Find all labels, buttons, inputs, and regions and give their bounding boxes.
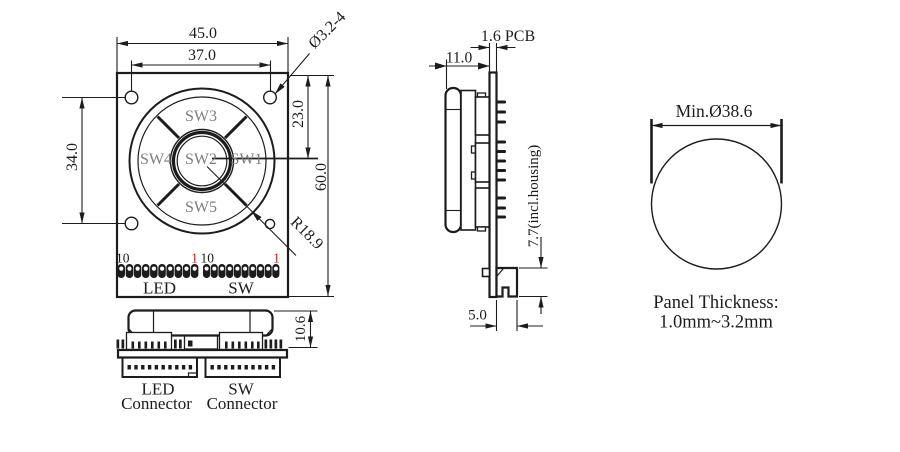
keycap-body-profile — [461, 91, 476, 231]
panel-thickness-note-line1: Panel Thickness: — [653, 293, 779, 313]
svg-text:23.0: 23.0 — [290, 100, 307, 128]
dim-keycap-depth: 11.0 — [429, 50, 490, 90]
led-pin10-number: 10 — [116, 251, 130, 266]
switch-label-sw1: SW1 — [231, 151, 263, 168]
technical-drawing: SW3 SW4 SW2 SW1 SW5 45.0 37.0 Ø3.2-4 — [0, 0, 900, 452]
dim-connector-protrusion: 5.0 — [468, 300, 543, 331]
mounting-hole-top-left — [125, 91, 138, 104]
dim-center-from-top: 23.0 — [290, 76, 334, 159]
svg-text:7.7(incl.housing): 7.7(incl.housing) — [526, 145, 542, 248]
pcb-side-profile — [490, 73, 497, 298]
switch-label-sw4: SW4 — [140, 151, 172, 168]
panel-thickness-note-line2: 1.0mm~3.2mm — [659, 313, 773, 333]
svg-text:11.0: 11.0 — [446, 50, 473, 67]
dim-hole-spacing-width: 37.0 — [132, 47, 271, 91]
keycap-profile — [129, 311, 273, 336]
pcb-edge-strip — [118, 350, 287, 358]
sw-connector-label-line2: Connector — [207, 394, 278, 413]
dim-pcb-thickness: 1.6 PCB — [471, 28, 536, 48]
cutout-circle — [652, 139, 782, 269]
svg-text:1.6 PCB: 1.6 PCB — [481, 28, 535, 45]
bottom-elevation-view: 10.6 LED Connector SW Connector — [117, 311, 318, 414]
dim-min-diameter: Min.Ø38.6 — [676, 101, 753, 121]
sw-pin-row — [203, 264, 279, 278]
svg-text:60.0: 60.0 — [313, 163, 330, 191]
led-pin1-number: 1 — [191, 251, 198, 266]
locating-peg — [483, 269, 490, 277]
svg-text:34.0: 34.0 — [64, 143, 81, 171]
svg-text:37.0: 37.0 — [188, 47, 216, 64]
led-row-label: LED — [143, 279, 176, 298]
led-pin-row — [118, 264, 199, 278]
dim-keycap-radius: R18.9 — [287, 214, 326, 253]
svg-text:Ø3.2-4: Ø3.2-4 — [305, 8, 349, 52]
dim-rear-protrusion: 7.7(incl.housing) — [519, 145, 548, 314]
mounting-hole-top-right — [264, 91, 277, 104]
sw-pin10-number: 10 — [201, 251, 215, 266]
sw-row-label: SW — [228, 279, 254, 298]
svg-text:5.0: 5.0 — [468, 308, 487, 324]
panel-cutout-view: Min.Ø38.6 Panel Thickness: 1.0mm~3.2mm — [652, 101, 782, 333]
sw-pin1-number: 1 — [273, 251, 280, 266]
svg-text:45.0: 45.0 — [189, 25, 217, 42]
sw-connector — [206, 358, 281, 378]
switch-label-sw5: SW5 — [185, 199, 217, 216]
led-connector — [123, 358, 198, 378]
mounting-hole-bottom-left — [125, 217, 138, 230]
drawing-canvas: SW3 SW4 SW2 SW1 SW5 45.0 37.0 Ø3.2-4 — [0, 0, 900, 452]
front-view: SW3 SW4 SW2 SW1 SW5 45.0 37.0 Ø3.2-4 — [62, 8, 349, 297]
mounting-hole-bottom-right — [265, 219, 274, 228]
svg-text:10.6: 10.6 — [293, 315, 309, 342]
dim-mounting-holes: Ø3.2-4 — [275, 8, 349, 94]
side-view: 1.6 PCB 11.0 7.7(incl.housing) 5.0 — [429, 28, 548, 331]
switch-label-sw3: SW3 — [185, 108, 217, 125]
through-hole-pins — [497, 101, 507, 219]
switch-label-sw2: SW2 — [185, 151, 217, 168]
led-connector-label-line2: Connector — [121, 394, 192, 413]
